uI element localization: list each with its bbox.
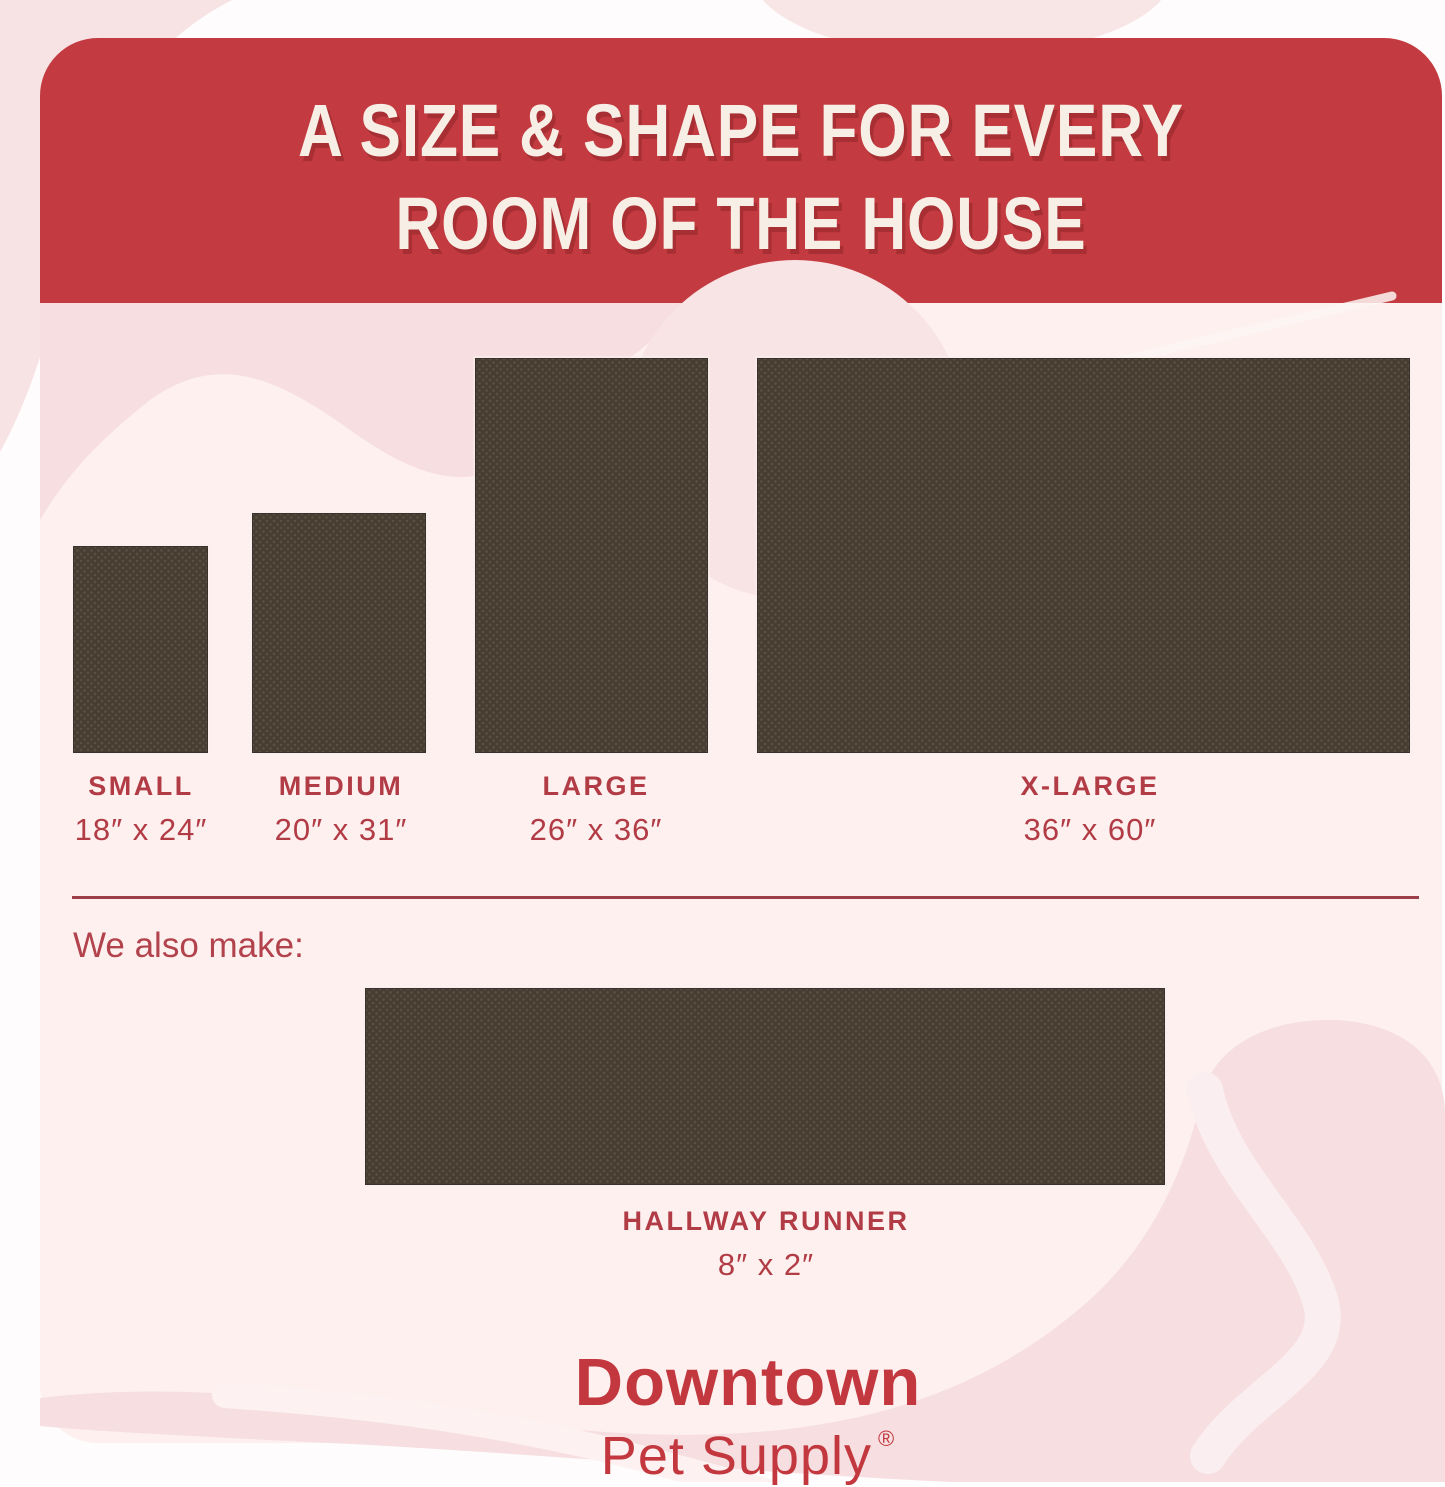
brand-subtitle: Pet Supply® <box>575 1425 922 1487</box>
size-label-large: LARGE 26″ x 36″ <box>530 771 663 848</box>
mat-medium-swatch <box>252 513 426 753</box>
mat-xlarge-swatch <box>757 358 1410 753</box>
page-title-line2: ROOM OF THE HOUSE <box>395 182 1086 265</box>
mat-large-swatch <box>475 358 708 753</box>
size-dims: 20″ x 31″ <box>275 812 408 848</box>
brand-logo: Downtown Pet Supply® <box>575 1344 922 1487</box>
size-name: X-LARGE <box>1021 771 1160 802</box>
size-label-small: SMALL 18″ x 24″ <box>75 771 208 848</box>
page-title: A SIZE & SHAPE FOR EVERY ROOM OF THE HOU… <box>152 84 1330 270</box>
size-dims: 26″ x 36″ <box>530 812 663 848</box>
section-divider <box>72 896 1419 899</box>
content-layer: A SIZE & SHAPE FOR EVERY ROOM OF THE HOU… <box>0 0 1445 1482</box>
brand-name: Downtown <box>575 1344 922 1421</box>
infographic-page: A SIZE & SHAPE FOR EVERY ROOM OF THE HOU… <box>0 0 1445 1482</box>
brand-subtitle-text: Pet Supply <box>601 1426 872 1486</box>
size-label-medium: MEDIUM 20″ x 31″ <box>275 771 408 848</box>
registered-mark: ® <box>878 1426 895 1451</box>
also-make-heading: We also make: <box>73 926 304 966</box>
size-name: SMALL <box>75 771 208 802</box>
mat-hallway-runner-swatch <box>365 988 1165 1185</box>
mat-small-swatch <box>73 546 208 753</box>
size-dims: 36″ x 60″ <box>1021 812 1160 848</box>
size-name: MEDIUM <box>275 771 408 802</box>
size-dims: 18″ x 24″ <box>75 812 208 848</box>
page-title-line1: A SIZE & SHAPE FOR EVERY <box>298 89 1184 172</box>
size-name: HALLWAY RUNNER <box>622 1206 909 1237</box>
size-label-xlarge: X-LARGE 36″ x 60″ <box>1021 771 1160 848</box>
size-dims: 8″ x 2″ <box>622 1247 909 1283</box>
size-label-hallway-runner: HALLWAY RUNNER 8″ x 2″ <box>622 1206 909 1283</box>
size-name: LARGE <box>530 771 663 802</box>
